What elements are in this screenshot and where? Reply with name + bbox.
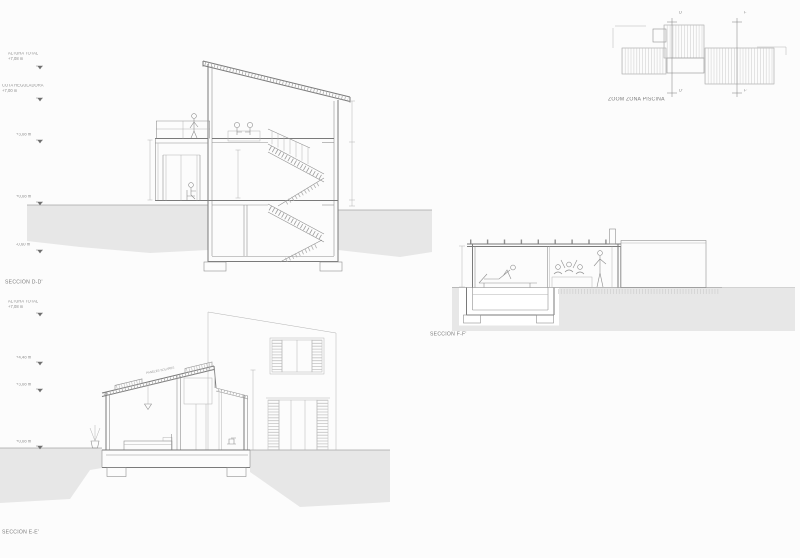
terrace-annex: [155, 121, 210, 201]
ground-left: [27, 205, 208, 253]
pool-outline: [667, 58, 704, 73]
level-markers: [36, 313, 43, 449]
pool-plan-drawing: [600, 5, 800, 110]
level-label-cota-reguladora: COTA REGULADORA +7,00 m: [2, 84, 44, 94]
section-ff-title: SECCIÓN F-F': [430, 332, 467, 337]
staircase: [268, 129, 324, 262]
pergola-roof: [467, 242, 621, 247]
deck-areas: [622, 25, 774, 84]
pavilion-slab: [102, 450, 250, 477]
level-label-altura-total-ee: ALTURA TOTAL +7,08 m: [8, 300, 38, 310]
section-ff-drawing: [440, 218, 800, 340]
pavilion-roof: [102, 362, 248, 399]
section-cut-lines: [667, 18, 742, 97]
section-dd-title: SECCIÓN D-D': [5, 280, 43, 285]
level-label-minus060: -0,60 m: [16, 243, 30, 248]
ground-right: [250, 450, 390, 507]
dimension-line: [459, 246, 465, 287]
dimension-hooks: [613, 26, 786, 55]
figures: [479, 251, 606, 288]
dimension-lines: [251, 370, 256, 450]
cut-letter-f-bottom: F': [744, 89, 747, 94]
level-label-308-ee: +3,08 m: [16, 383, 31, 388]
level-label-008-ee: +0,08 m: [16, 440, 31, 445]
level-label-008-dd: +0,08 m: [16, 195, 31, 200]
roof: [203, 61, 350, 103]
level-label-308-dd: +3,08 m: [16, 133, 31, 138]
ground-left: [0, 448, 102, 503]
hedge-block: [621, 241, 706, 288]
level-label-altura-total-dd: ALTURA TOTAL +7,08 m: [8, 52, 38, 62]
cut-letter-d-top: D: [679, 11, 682, 16]
background-elevation: [208, 312, 336, 450]
ground-right: [338, 210, 432, 257]
people: [187, 114, 260, 200]
dimension-lines: [148, 101, 356, 206]
section-ee-drawing: [0, 295, 400, 558]
pool-excavation: [459, 288, 559, 326]
drawing-sheet: ALTURA TOTAL +7,08 m COTA REGULADORA +7,…: [0, 0, 800, 558]
plant: [90, 425, 100, 448]
pool-plan-title: ZOOM ZONA PISCINA: [608, 97, 665, 102]
cut-letter-f-top: F: [744, 11, 747, 16]
level-label-448: +4,48 m: [16, 356, 31, 361]
section-dd-drawing: [0, 0, 440, 300]
cut-letter-d-bottom: D': [679, 89, 683, 94]
section-ee-title: SECCIÓN E-E': [2, 530, 39, 535]
